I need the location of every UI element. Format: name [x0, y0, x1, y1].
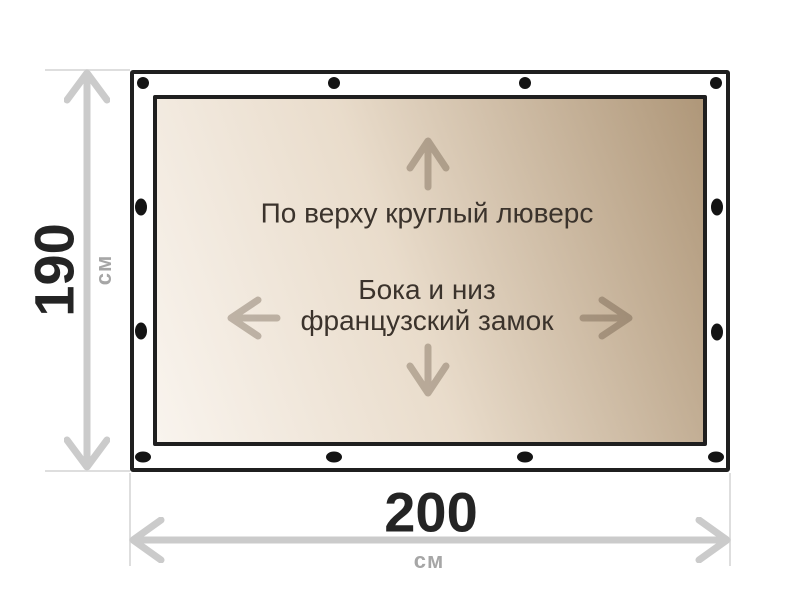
- left-arrow-icon: [227, 296, 281, 340]
- grommet: [326, 452, 342, 463]
- grommet: [137, 77, 149, 89]
- grommet: [135, 199, 147, 216]
- width-unit: см: [414, 548, 445, 574]
- product-diagram: По верху круглый люверс Бока и низ франц…: [0, 0, 800, 600]
- grommet: [519, 77, 531, 89]
- right-arrow-icon: [579, 296, 633, 340]
- grommet: [135, 323, 147, 340]
- height-value: 190: [22, 223, 87, 316]
- down-arrow-icon: [406, 343, 450, 397]
- grommet: [135, 452, 151, 463]
- middle-note: Бока и низ французский замок: [301, 274, 554, 336]
- up-arrow-icon: [406, 137, 450, 191]
- grommet: [328, 77, 340, 89]
- height-unit: см: [91, 255, 117, 286]
- middle-note-line1: Бока и низ: [301, 274, 554, 305]
- grommet: [708, 452, 724, 463]
- grommet: [711, 199, 723, 216]
- grommet: [710, 77, 722, 89]
- grommet: [711, 324, 723, 341]
- grommet: [517, 452, 533, 463]
- width-value: 200: [384, 480, 477, 545]
- middle-note-line2: французский замок: [301, 305, 554, 336]
- top-note: По верху круглый люверс: [261, 198, 594, 229]
